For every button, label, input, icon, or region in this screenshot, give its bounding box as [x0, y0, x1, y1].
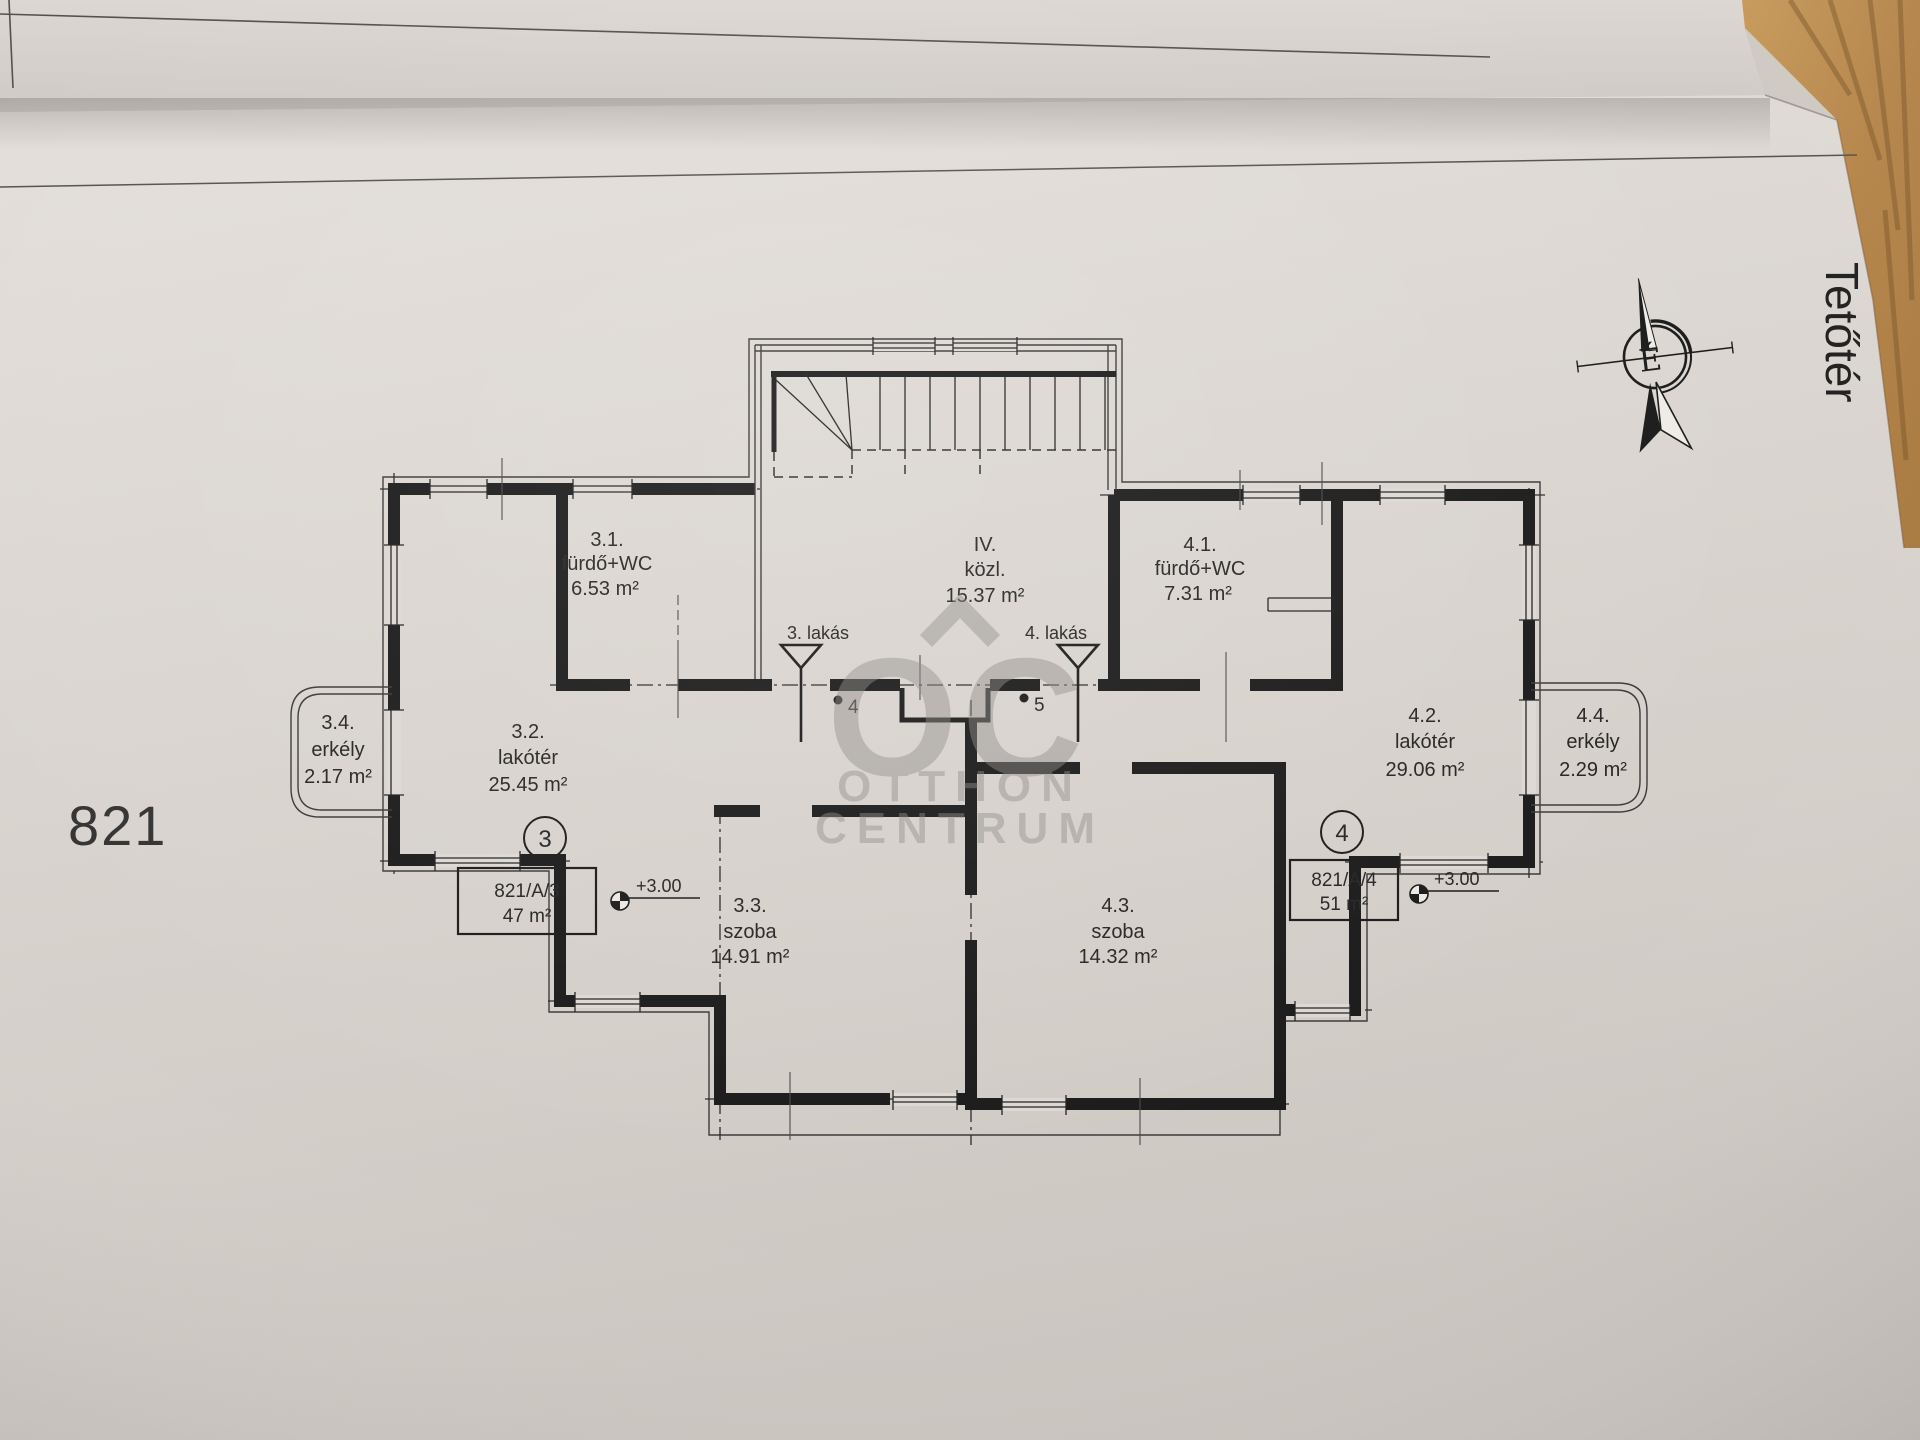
photo-vignette: [0, 0, 1920, 1440]
photographed-floor-plan: 3.1. fürdő+WC 6.53 m² IV. közl. 15.37 m²…: [0, 0, 1920, 1440]
floor-plan-canvas: 3.1. fürdő+WC 6.53 m² IV. közl. 15.37 m²…: [0, 0, 1920, 1440]
